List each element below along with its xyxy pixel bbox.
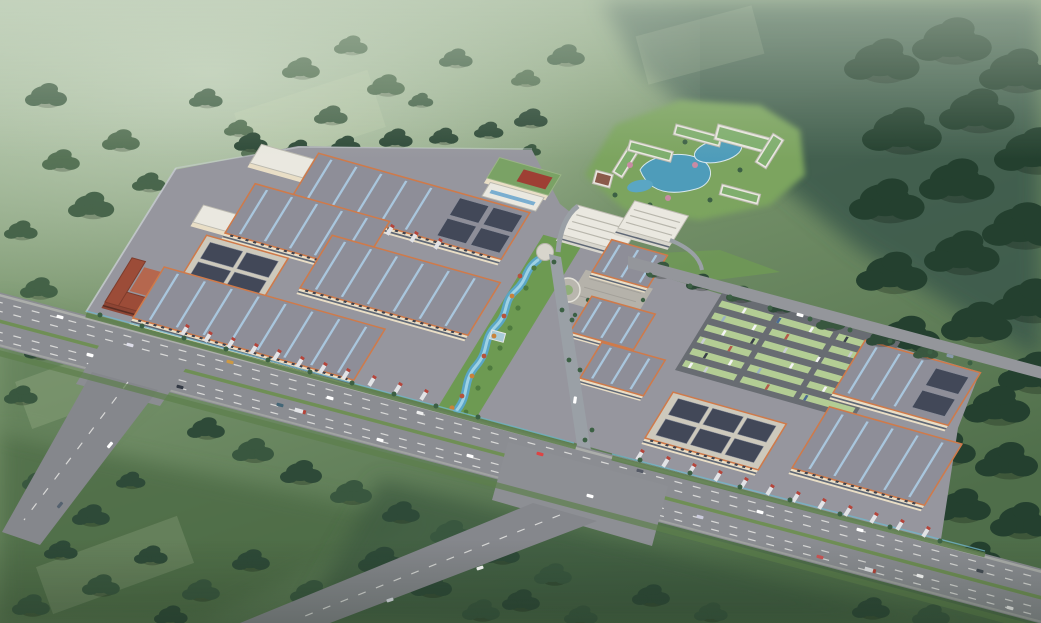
aerial-render — [0, 0, 1041, 623]
vignette-bottom — [0, 540, 1041, 623]
haze-overlay-top — [0, 0, 1041, 160]
